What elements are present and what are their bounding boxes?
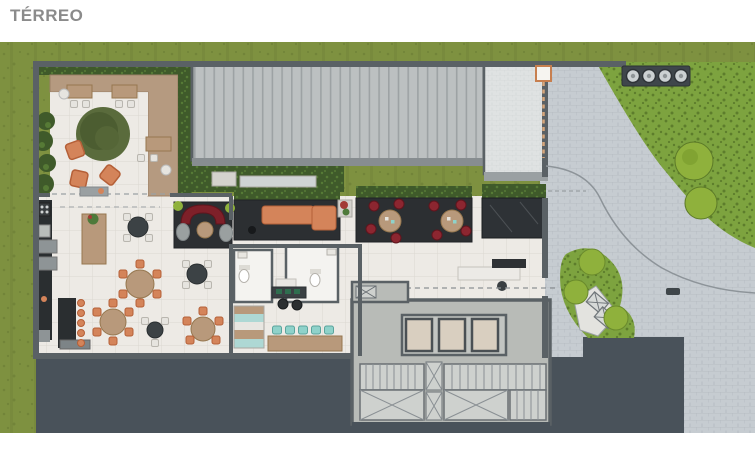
reception-chair [497,281,507,291]
coffee-table [197,222,213,238]
floor-plan-page: TÉRREO [0,0,755,450]
waste-enclosure [622,66,690,86]
cabinet [36,240,57,253]
roof-slab-left [36,356,352,433]
side-table [161,165,171,175]
coworking-desk [268,326,342,351]
sink [238,252,247,258]
red-sofa-nook [173,201,235,248]
gate-post [536,66,551,81]
appliance [39,330,50,342]
orange-sofa-lounge [234,200,352,240]
entry-hedge [482,184,546,198]
planter-band [186,166,344,192]
canopy-parapet [484,172,548,181]
dining-table-4 [183,261,212,289]
armchair [177,224,190,241]
floor-plan-render [0,42,755,433]
elevator-car [439,319,465,351]
sofa [262,206,314,224]
cafe-hedge [356,186,472,198]
cafe-seating [356,198,472,243]
ribbed-metal-roof [192,64,484,160]
shelf-unit [234,306,264,348]
elevator-car [472,319,498,351]
cabinet [36,257,57,270]
lounge-hedge [234,189,340,200]
side-table [59,89,69,99]
cafe-table [379,210,401,232]
armchair [220,225,233,242]
wood-bar-table [82,214,106,265]
roof-parapet [192,158,484,166]
coffee-machine [276,279,296,287]
stool [278,299,288,309]
floor-plan [0,42,755,433]
elevator-car [406,319,432,351]
stool [292,300,302,310]
sink [327,249,336,255]
tree [579,249,605,275]
tree [685,187,717,219]
sofa-chaise [312,206,336,230]
stairwell-left [360,364,424,420]
stairwell-right [444,364,546,420]
side-table [248,226,256,234]
cooktop [39,203,50,216]
reception-desk [458,267,520,280]
sink [39,225,50,237]
toilet [310,274,320,287]
tree [564,280,588,304]
reception-panel [492,259,526,268]
page-title: TÉRREO [10,6,83,26]
cafe-table [441,210,463,232]
terrace [33,64,192,196]
marble-feature-wall [482,198,544,238]
toilet [239,270,249,283]
dining-table-4 [124,214,153,242]
tree [604,306,628,330]
core [352,282,550,433]
street-lamp [666,288,680,295]
potted-plant [173,201,183,211]
